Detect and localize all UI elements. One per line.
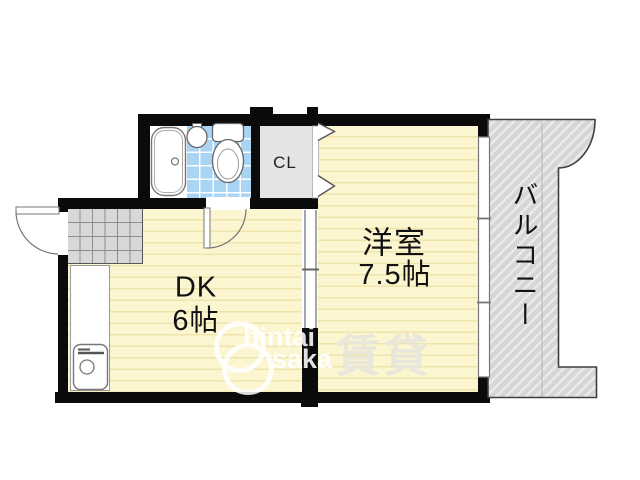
balcony-label: バルコニー [506,181,543,331]
watermark-brand: 賃貸 [336,320,432,384]
closet-folding-door-icon [318,176,335,197]
bathtub-icon [152,128,186,196]
closet-opening [313,126,319,198]
floor-plan: DK 6帖 洋室 7.5帖 CL バルコニー hintai saka 賃貸 [0,0,640,480]
dk-room-size: 6帖 [172,297,219,339]
western-room-size: 7.5帖 [358,251,431,293]
toilet-tank [213,124,244,142]
window-icon [479,137,490,377]
fixtures-layer [0,0,640,480]
kitchen-sink-drain [80,360,94,374]
bathroom-door-swing [207,209,246,248]
bathtub-drain [172,158,179,165]
entrance-door-swing [16,211,58,254]
closet-folding-door-icon [318,123,335,141]
entrance-door-panel [16,207,59,214]
closet-label: CL [273,153,297,173]
toilet-icon [213,140,244,183]
wash-basin-icon [187,127,207,148]
watermark-text-2: saka [272,344,332,375]
bathroom-door-panel [204,208,210,248]
